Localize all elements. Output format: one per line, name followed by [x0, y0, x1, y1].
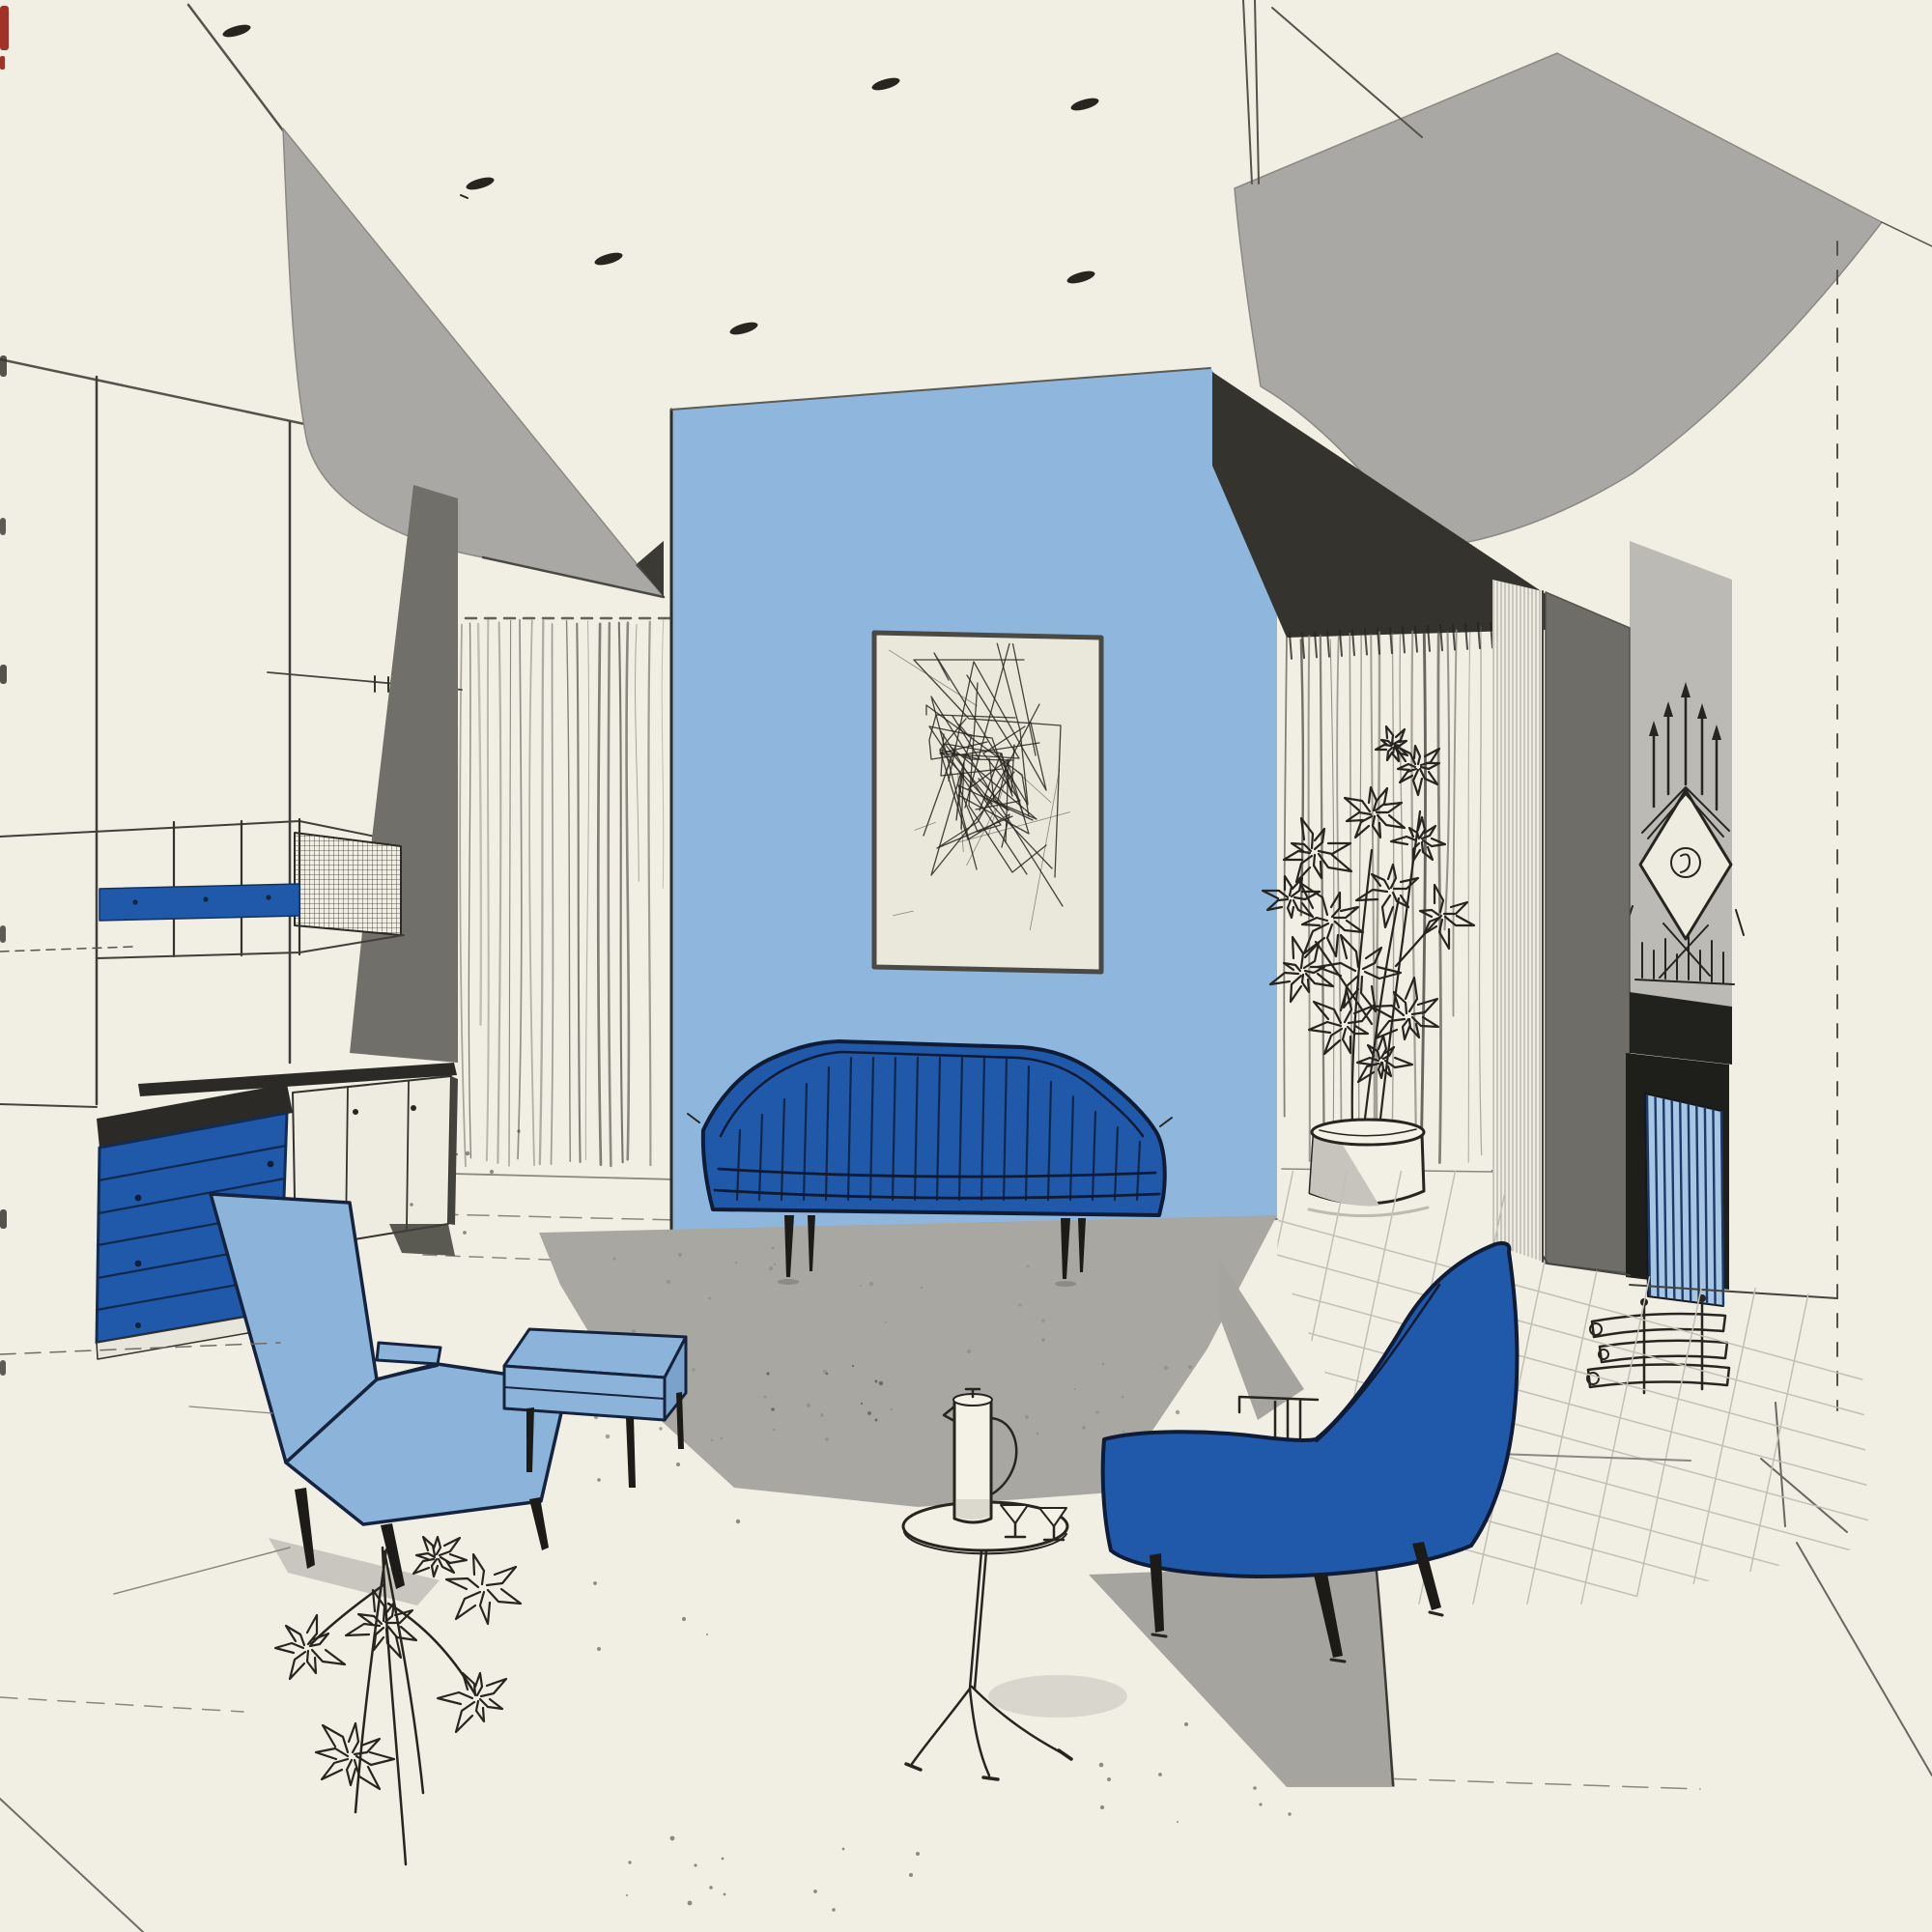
interior-rendering	[0, 0, 1932, 1932]
red-binding-mark	[0, 6, 9, 50]
drawer-pull	[135, 1322, 141, 1328]
shelf-blue-fascia	[99, 884, 299, 921]
drawer-pull	[135, 1195, 142, 1202]
binding-mark	[0, 355, 7, 377]
shelf-knob	[203, 896, 208, 901]
door-knob	[353, 1109, 358, 1115]
pitcher-liquid	[956, 1499, 989, 1520]
door-knob	[411, 1105, 416, 1111]
binding-mark	[0, 665, 7, 684]
red-binding-mark	[0, 56, 5, 70]
leg-shadow	[778, 1279, 799, 1285]
binding-mark	[0, 1360, 6, 1376]
leg-shadow	[1055, 1281, 1076, 1287]
binding-mark	[0, 925, 6, 943]
table-shadow	[988, 1675, 1127, 1718]
chimney-column	[1546, 592, 1630, 1273]
sheer-corner	[1492, 580, 1543, 1262]
armchair-arm	[377, 1343, 440, 1364]
grid-panel	[295, 833, 401, 935]
drawer-pull	[135, 1261, 142, 1267]
shelf-knob	[266, 895, 270, 899]
shelf-knob	[132, 899, 137, 904]
binding-mark	[0, 1209, 7, 1229]
illustration-page	[0, 0, 1932, 1932]
drawer-pull	[268, 1161, 274, 1168]
binding-mark	[0, 518, 6, 535]
